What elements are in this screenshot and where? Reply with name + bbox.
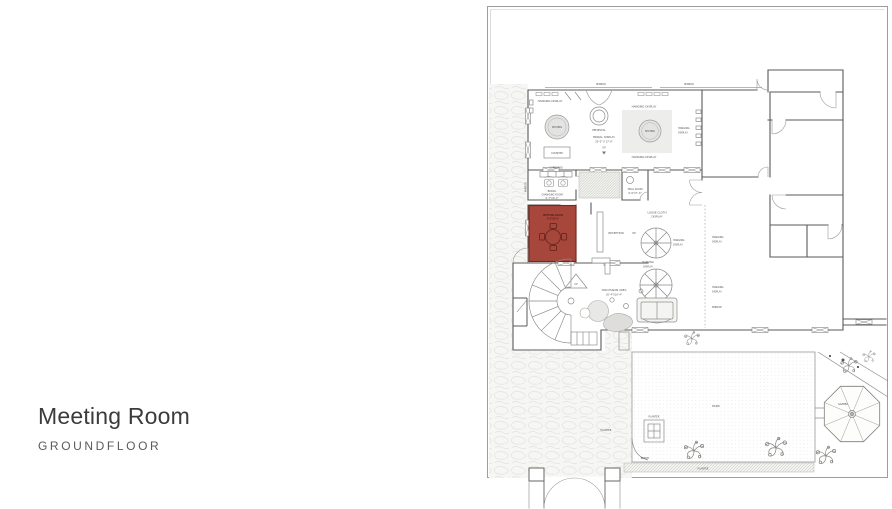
label-changing-dims: 6'-7"X6'-0" (546, 197, 559, 200)
entrance-door-swings (544, 478, 605, 509)
label-display: DISPLAY (673, 244, 683, 247)
label-mirror: MIRROR (712, 306, 722, 309)
label-display: DISPLAY (678, 132, 688, 135)
label-bench: BENCH (641, 457, 650, 460)
plant (684, 331, 699, 344)
top-right-room-floor (766, 68, 844, 92)
label-reception: RECEPTION (608, 231, 623, 235)
plant-dot (842, 359, 845, 362)
discussion-table (588, 301, 609, 322)
label-planter: PLANTER (601, 429, 612, 432)
gate-counter (592, 258, 610, 263)
label-meeting-room: MEETING ROOM (543, 213, 563, 217)
gazebo: GAZEBO (815, 386, 880, 441)
label-cupboard: CUPBOARD (549, 167, 563, 170)
entrance-pillar (605, 468, 620, 481)
label-trial-room: TRIAL ROOM (627, 188, 642, 191)
label-up: UP (574, 283, 578, 286)
label-planter: PLANTER (649, 416, 660, 419)
label-seating: SEATING (552, 126, 562, 129)
paver-strip (624, 463, 814, 472)
slide: Meeting Room GROUNDFLOOR (0, 0, 892, 509)
label-hanging-display: HANGING DISPLAY (538, 99, 563, 103)
plant-dot (829, 355, 831, 357)
label-trial-room-dims: 6'-6"X7'-0" (629, 192, 642, 195)
sofa (637, 298, 677, 323)
label-mirror: MIRROR (525, 182, 528, 192)
label-discussion-area: DISCUSSION AREA (602, 288, 627, 292)
label-up: UP (602, 147, 606, 150)
meeting-room-highlight: MEETING ROOM 6'-0"X6'-6" (529, 206, 576, 262)
hanging-display-wheel (641, 228, 671, 258)
label-up: UP (632, 231, 636, 235)
label-hanging: HANGING (712, 236, 724, 239)
label-display: DISPLAY (643, 266, 653, 269)
label-hanging: HANGING (642, 261, 654, 264)
label-bridal-display: BRIDAL DISPLAY (593, 135, 615, 139)
label-counter: COUNTER (551, 152, 563, 155)
entrance-pillar (529, 468, 544, 481)
label-discussion-dims: 20'-4"X16'-4" (606, 294, 622, 297)
plant-dot (857, 366, 859, 368)
label-mirror: MIRROR (596, 83, 606, 86)
reception-desk (597, 212, 603, 252)
label-hanging-display: HANGING DISPLAY (632, 105, 657, 109)
label-display: DISPLAY (712, 291, 722, 294)
hanging-display-wheel (640, 269, 672, 301)
label-mirror: MIRROR (684, 83, 694, 86)
label-pedestal: PEDESTAL (592, 128, 606, 132)
door-leaves (544, 478, 605, 509)
label-seating: SEATING (645, 130, 655, 133)
label-hanging: HANGING (712, 286, 724, 289)
plant (863, 351, 876, 362)
label-hanging: HANGING (673, 239, 685, 242)
label-hanging-display: HANGING DISPLAY (632, 155, 657, 159)
label-display: DISPLAY (712, 241, 722, 244)
label-meeting-room-dims: 6'-0"X6'-6" (547, 218, 559, 221)
label-bridal-display-dims: 20'-0" X 17'-0" (595, 141, 613, 144)
plant (816, 446, 836, 463)
label-planter: PLANTER (698, 468, 709, 471)
label-gazebo: GAZEBO (838, 403, 848, 406)
label-display: DISPLAY (651, 215, 662, 219)
floor-plan: BENCH PARK PLANTER PLANTER PLANTER (0, 0, 892, 509)
wardrobe-strip (579, 172, 620, 198)
floor-plan-svg: BENCH PARK PLANTER PLANTER PLANTER (0, 0, 892, 509)
label-hanging: HANGING (678, 127, 690, 130)
label-park: PARK (712, 404, 721, 408)
